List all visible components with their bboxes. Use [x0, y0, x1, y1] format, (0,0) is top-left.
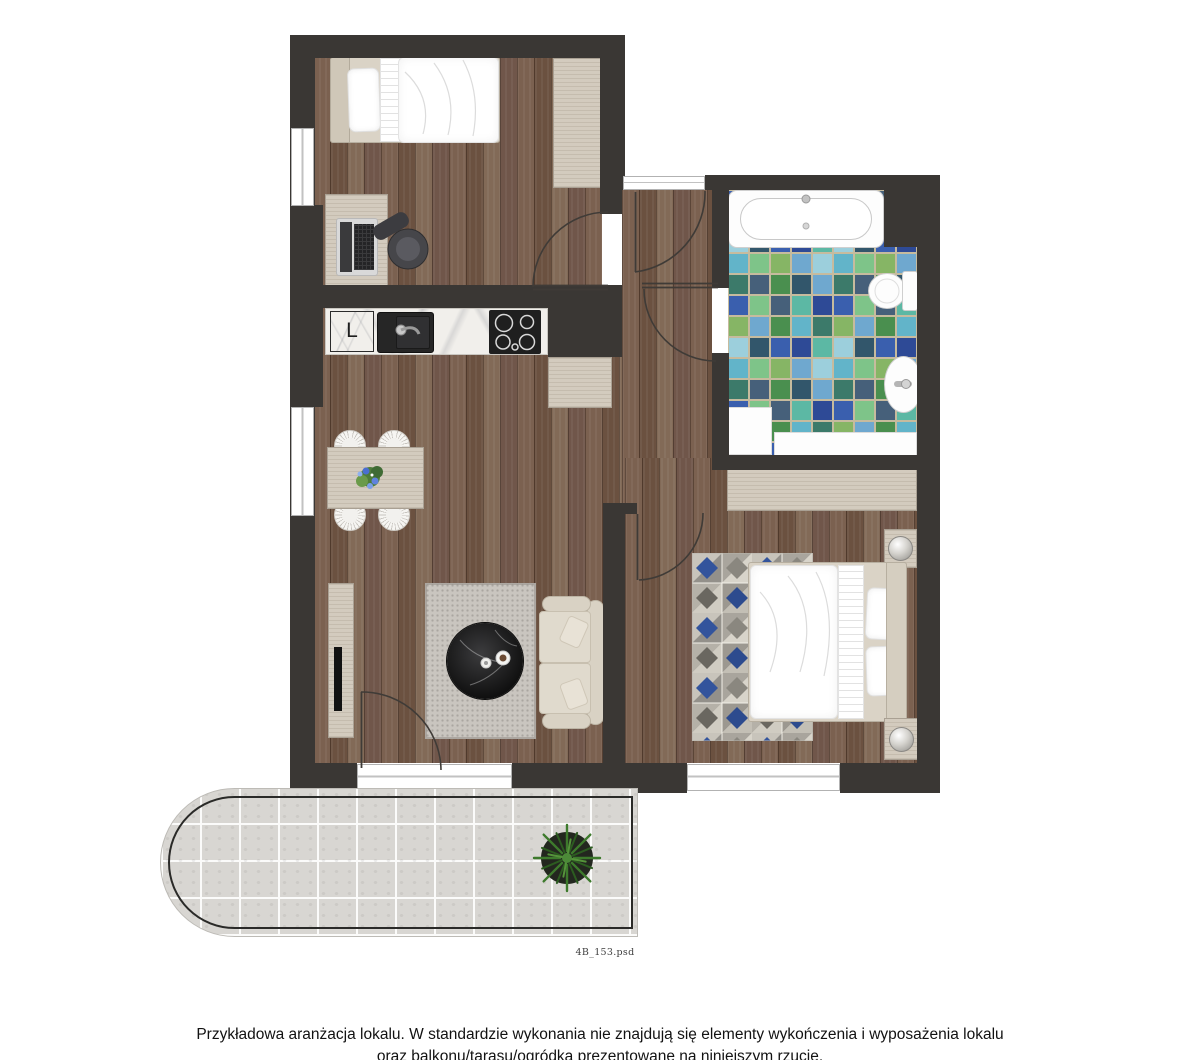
wall — [840, 763, 940, 793]
sofa — [537, 596, 604, 729]
kitchen-cabinet — [548, 357, 612, 408]
wall — [548, 298, 622, 357]
bedroom2-duvet-ruffle — [838, 565, 864, 719]
file-watermark: 4B_153.psd — [520, 947, 690, 958]
wall — [290, 35, 625, 58]
bedroom1-pillow — [347, 67, 381, 132]
laptop-screen — [340, 222, 352, 272]
toilet-tank — [902, 271, 918, 311]
disclaimer-caption: Przykładowa aranżacja lokalu. W standard… — [0, 1024, 1200, 1060]
tv — [334, 647, 342, 711]
disclaimer-line-1: Przykładowa aranżacja lokalu. W standard… — [0, 1024, 1200, 1046]
disclaimer-line-2: oraz balkonu/tarasu/ogródka prezentowane… — [0, 1046, 1200, 1060]
dining-table — [327, 447, 424, 509]
bedroom1-duvet — [398, 57, 499, 143]
table-lamp — [888, 536, 913, 561]
bedroom2-duvet — [750, 565, 838, 719]
bathroom-cabinet — [728, 407, 772, 455]
wall — [712, 188, 729, 288]
balcony-door — [357, 764, 512, 791]
cooktop — [489, 310, 541, 354]
wall — [712, 353, 729, 458]
entrance-door-opening — [623, 176, 705, 190]
wall — [917, 175, 940, 793]
wall — [603, 503, 625, 763]
wall — [712, 455, 940, 470]
fridge-label: L — [346, 319, 358, 342]
kitchen-sink-basin — [396, 316, 430, 349]
fridge: L — [330, 311, 374, 352]
bedroom2-wardrobe — [727, 466, 917, 511]
wall — [600, 188, 622, 214]
bedroom1-duvet-ruffle — [380, 58, 400, 142]
wall — [884, 175, 917, 247]
bedroom2-headboard — [886, 562, 907, 722]
toilet-bowl — [868, 273, 906, 309]
laptop-keyboard — [354, 224, 374, 270]
table-lamp — [889, 727, 914, 752]
bedroom2-window — [687, 764, 840, 791]
terrace-plant — [527, 818, 607, 898]
coffee-table — [447, 623, 523, 699]
sofa-armrest — [542, 713, 591, 729]
wall — [600, 35, 625, 190]
window — [291, 128, 314, 206]
wall — [603, 503, 637, 514]
window — [291, 407, 314, 516]
sofa-armrest — [542, 596, 591, 612]
bathtub — [728, 190, 884, 248]
bathtub-basin — [740, 198, 872, 240]
floor-plan-image: L — [0, 0, 1200, 1060]
